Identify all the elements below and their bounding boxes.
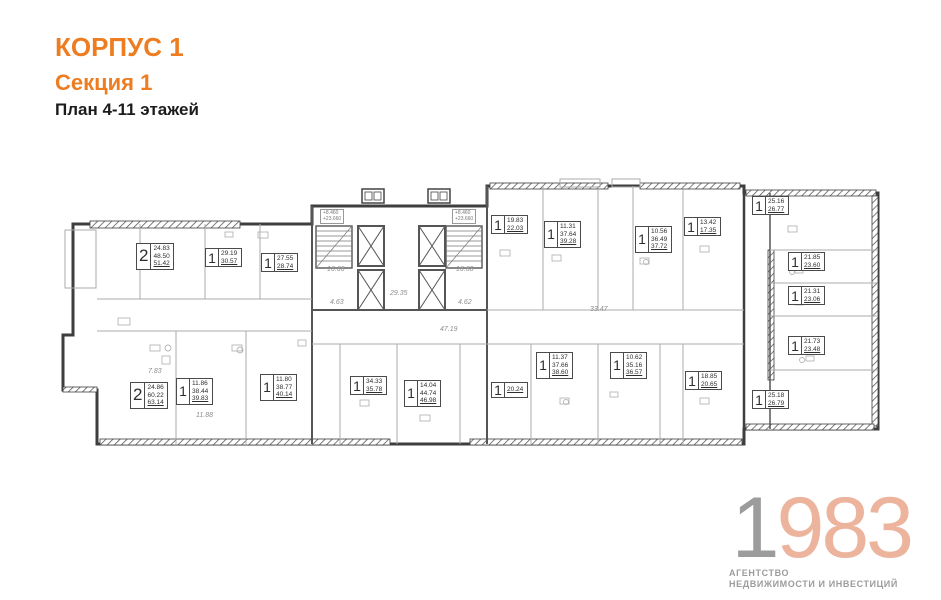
apartment-type: 1: [206, 249, 219, 266]
apartment-type: 1: [611, 353, 624, 378]
apartment-areas: 19.8322.03: [505, 216, 527, 233]
apartment-label: 1 25.1626.77: [752, 196, 789, 215]
apartment-type: 1: [261, 375, 274, 400]
apartment-type: 1: [492, 383, 505, 397]
apartment-type: 1: [685, 218, 698, 235]
apartment-type: 1: [753, 391, 766, 408]
apartment-label: 1 34.3335.78: [350, 376, 387, 395]
page: КОРПУС 1 Секция 1 План 4-11 этажей: [0, 0, 941, 600]
apartment-type: 1: [753, 197, 766, 214]
apartment-label: 1 11.3137.6439.28: [544, 221, 581, 248]
apartment-type: 2: [131, 383, 145, 408]
apartment-type: 1: [537, 353, 550, 378]
apartment-type: 1: [545, 222, 558, 247]
apartment-type: 1: [686, 372, 699, 389]
apartment-type: 1: [351, 377, 364, 394]
apartment-type: 1: [789, 337, 802, 354]
apartment-label: 1 21.8523.60: [788, 252, 825, 271]
apartment-label: 1 18.8520.65: [685, 371, 722, 390]
apartment-areas: 21.7323.48: [802, 337, 824, 354]
dimension-annotation: 29.35: [390, 290, 408, 297]
apartment-label: 1 10.5636.4937.72: [635, 226, 672, 253]
apartment-type: 1: [177, 379, 190, 404]
agency-logo: 1983 АГЕНТСТВО НЕДВИЖИМОСТИ И ИНВЕСТИЦИЙ: [681, 488, 911, 590]
apartment-areas: 11.3137.6439.28: [558, 222, 580, 247]
apartment-areas: 20.24: [505, 383, 527, 397]
apartment-areas: 24.8348.5051.42: [151, 244, 173, 269]
apartment-areas: 27.5528.74: [275, 254, 297, 271]
apartment-label: 1 11.3737.6638.60: [536, 352, 573, 379]
apartment-type: 1: [492, 216, 505, 233]
apartment-type: 1: [405, 381, 418, 406]
apartment-label: 1 13.4217.35: [684, 217, 721, 236]
apartment-label: 1 25.1826.79: [752, 390, 789, 409]
apartment-label: 2 24.8660.2263.14: [130, 382, 168, 409]
apartment-type: 1: [789, 287, 802, 304]
dimension-annotation: 4.62: [458, 299, 472, 306]
elevation-mark: +8.460 +23.660: [452, 209, 476, 224]
apartment-areas: 18.8520.65: [699, 372, 721, 389]
apartment-areas: 21.3123.06: [802, 287, 824, 304]
dimension-annotation: 4.63: [330, 299, 344, 306]
apartment-type: 2: [137, 244, 151, 269]
apartment-areas: 11.8638.4439.83: [190, 379, 212, 404]
apartment-label: 1 21.3123.06: [788, 286, 825, 305]
logo-year-rest: 983: [777, 480, 912, 576]
apartment-areas: 13.4217.35: [698, 218, 720, 235]
dimension-annotation: 16.66: [327, 266, 345, 273]
apartment-type: 1: [789, 253, 802, 270]
apartment-areas: 29.1930.57: [219, 249, 241, 266]
apartment-label: 1 10.6235.1636.57: [610, 352, 647, 379]
apartment-label: 1 21.7323.48: [788, 336, 825, 355]
apartment-areas: 21.8523.60: [802, 253, 824, 270]
dimension-annotation: 47.19: [440, 326, 458, 333]
dimension-annotation: 11.88: [196, 412, 213, 419]
apartment-areas: 25.1826.79: [766, 391, 788, 408]
logo-year: 1983: [681, 488, 911, 568]
apartment-areas: 11.3737.6638.60: [550, 353, 572, 378]
apartment-label: 1 20.24: [491, 382, 528, 398]
apartment-areas: 25.1626.77: [766, 197, 788, 214]
apartment-label: 1 27.5528.74: [261, 253, 298, 272]
dimension-annotation: 16.68: [456, 266, 474, 273]
elevation-mark: +8.460 +23.660: [320, 209, 344, 224]
logo-year-first-digit: 1: [732, 480, 777, 576]
apartment-areas: 34.3335.78: [364, 377, 386, 394]
apartment-label: 1 11.8038.7740.14: [260, 374, 297, 401]
apartment-areas: 14.0444.7446.98: [418, 381, 440, 406]
apartment-areas: 11.8038.7740.14: [274, 375, 296, 400]
apartment-type: 1: [262, 254, 275, 271]
apartment-areas: 10.6235.1636.57: [624, 353, 646, 378]
apartment-label: 1 29.1930.57: [205, 248, 242, 267]
apartment-label: 1 11.8638.4439.83: [176, 378, 213, 405]
apartment-areas: 10.5636.4937.72: [649, 227, 671, 252]
apartment-label: 1 19.8322.03: [491, 215, 528, 234]
dimension-annotation: 33.47: [590, 306, 608, 313]
dimension-annotation: 7.83: [148, 368, 162, 375]
apartment-type: 1: [636, 227, 649, 252]
apartment-label: 1 14.0444.7446.98: [404, 380, 441, 407]
apartment-areas: 24.8660.2263.14: [145, 383, 167, 408]
logo-caption-line2: НЕДВИЖИМОСТИ И ИНВЕСТИЦИЙ: [729, 579, 911, 590]
apartment-label: 2 24.8348.5051.42: [136, 243, 174, 270]
